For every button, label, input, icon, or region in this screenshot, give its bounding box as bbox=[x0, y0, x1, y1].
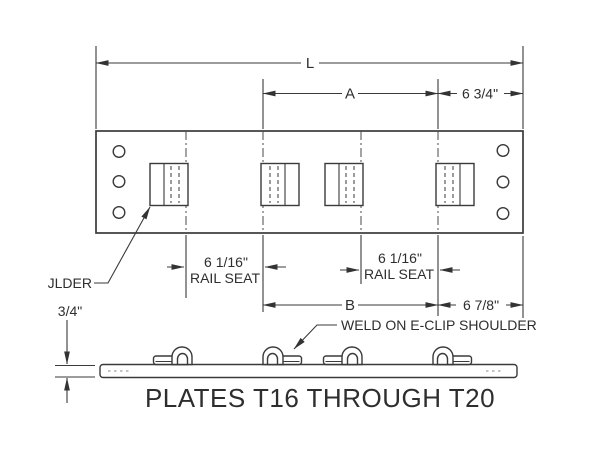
technical-drawing: L A 6 3/4" 6 1/16" RAIL SEAT 6 1/16" RAI… bbox=[0, 0, 600, 473]
rail-seat-right-value: 6 1/16" bbox=[378, 250, 422, 266]
side-view bbox=[100, 347, 517, 378]
shoulder-leader: JLDER bbox=[48, 207, 150, 291]
bolt-hole bbox=[113, 176, 125, 188]
shoulder-leader-label: JLDER bbox=[48, 275, 92, 291]
bolt-hole bbox=[497, 208, 509, 220]
e-clip-shoulder-2 bbox=[263, 347, 302, 365]
dim-B-label: B bbox=[345, 297, 355, 314]
top-view bbox=[96, 131, 523, 233]
dim-B: B bbox=[263, 297, 438, 314]
shoulder-seat-2 bbox=[261, 164, 299, 206]
drawing-title: PLATES T16 THROUGH T20 bbox=[145, 383, 495, 413]
dim-overall-length: L bbox=[96, 55, 523, 72]
plate-side-outline bbox=[100, 365, 517, 378]
dim-A: A bbox=[263, 86, 438, 103]
weld-note-label: WELD ON E-CLIP SHOULDER bbox=[341, 317, 537, 333]
dim-6-3-4: 6 3/4" bbox=[438, 86, 523, 102]
weld-note: WELD ON E-CLIP SHOULDER bbox=[294, 317, 537, 349]
drawing-canvas: L A 6 3/4" 6 1/16" RAIL SEAT 6 1/16" RAI… bbox=[0, 0, 600, 473]
dim-rail-seat-left: 6 1/16" RAIL SEAT bbox=[167, 254, 286, 286]
thickness-label: 3/4" bbox=[58, 303, 82, 319]
shoulder-seat-4 bbox=[436, 164, 474, 206]
dim-6-3-4-label: 6 3/4" bbox=[462, 86, 498, 102]
bolt-hole bbox=[497, 176, 509, 188]
shoulder-seat-1 bbox=[150, 164, 188, 206]
e-clip-shoulder-4 bbox=[433, 347, 472, 365]
dim-thickness: 3/4" bbox=[55, 303, 95, 403]
e-clip-shoulder-3 bbox=[324, 347, 363, 365]
rail-seat-left-value: 6 1/16" bbox=[204, 254, 248, 270]
dim-L-label: L bbox=[306, 55, 314, 72]
dim-6-7-8: 6 7/8" bbox=[438, 297, 523, 313]
rail-seat-left-caption: RAIL SEAT bbox=[190, 270, 260, 286]
dim-rail-seat-right: 6 1/16" RAIL SEAT bbox=[340, 250, 460, 282]
bolt-hole bbox=[113, 207, 125, 219]
bolt-hole bbox=[497, 145, 509, 157]
shoulder-seat-3 bbox=[325, 164, 363, 206]
dim-6-7-8-label: 6 7/8" bbox=[463, 297, 499, 313]
e-clip-shoulder-1 bbox=[154, 347, 193, 365]
rail-seat-right-caption: RAIL SEAT bbox=[364, 266, 434, 282]
centerlines bbox=[186, 131, 438, 233]
dim-A-label: A bbox=[345, 86, 355, 103]
bolt-hole bbox=[113, 146, 125, 158]
